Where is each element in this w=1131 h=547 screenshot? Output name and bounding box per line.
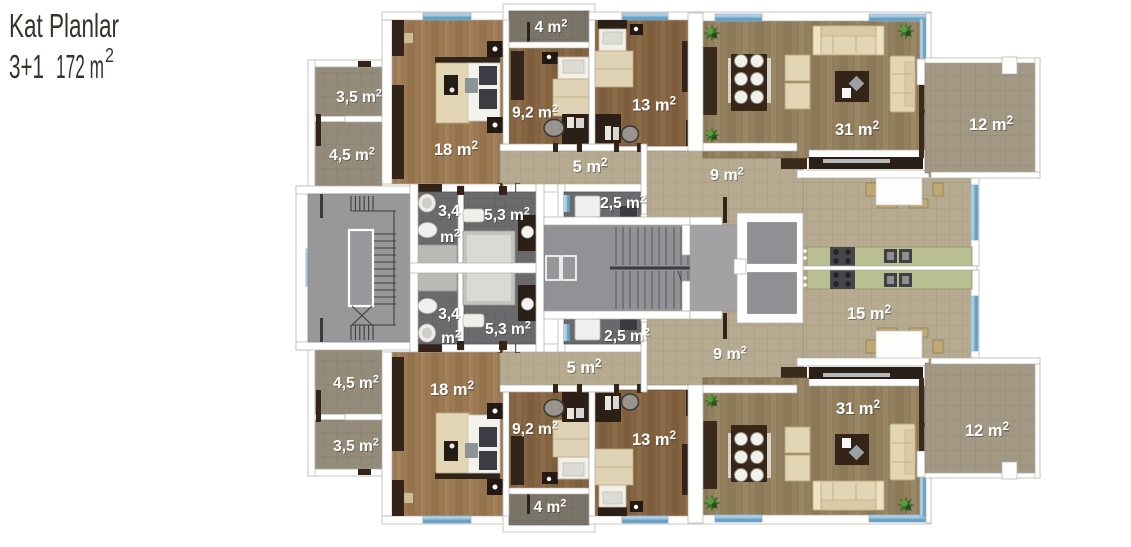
svg-text:4,5 m2: 4,5 m2 [333, 374, 379, 392]
svg-text:13 m2: 13 m2 [632, 96, 676, 115]
svg-text:172 m: 172 m [56, 48, 104, 85]
svg-text:13 m2: 13 m2 [632, 430, 676, 449]
svg-text:12 m2: 12 m2 [969, 115, 1013, 134]
svg-text:9,2 m2: 9,2 m2 [512, 103, 558, 121]
svg-text:2: 2 [105, 45, 114, 67]
svg-text:31 m2: 31 m2 [836, 399, 880, 418]
svg-text:5,3 m2: 5,3 m2 [485, 320, 531, 338]
svg-text:3,5 m2: 3,5 m2 [336, 88, 382, 106]
svg-text:3,5 m2: 3,5 m2 [333, 437, 379, 455]
svg-text:2,5 m2: 2,5 m2 [600, 194, 646, 212]
svg-text:3+1: 3+1 [9, 48, 44, 85]
svg-text:Kat Planlar: Kat Planlar [9, 7, 119, 44]
svg-text:3,4: 3,4 [438, 306, 460, 323]
svg-text:2,5 m2: 2,5 m2 [604, 327, 650, 345]
svg-text:5,3 m2: 5,3 m2 [484, 206, 530, 224]
svg-text:15 m2: 15 m2 [847, 304, 891, 323]
svg-text:18 m2: 18 m2 [430, 380, 474, 399]
svg-text:18 m2: 18 m2 [434, 140, 478, 159]
svg-text:12 m2: 12 m2 [965, 421, 1009, 440]
svg-text:3,4: 3,4 [438, 203, 460, 220]
svg-text:4,5 m2: 4,5 m2 [329, 146, 375, 164]
svg-text:9,2 m2: 9,2 m2 [512, 420, 558, 438]
svg-text:31 m2: 31 m2 [835, 120, 879, 139]
